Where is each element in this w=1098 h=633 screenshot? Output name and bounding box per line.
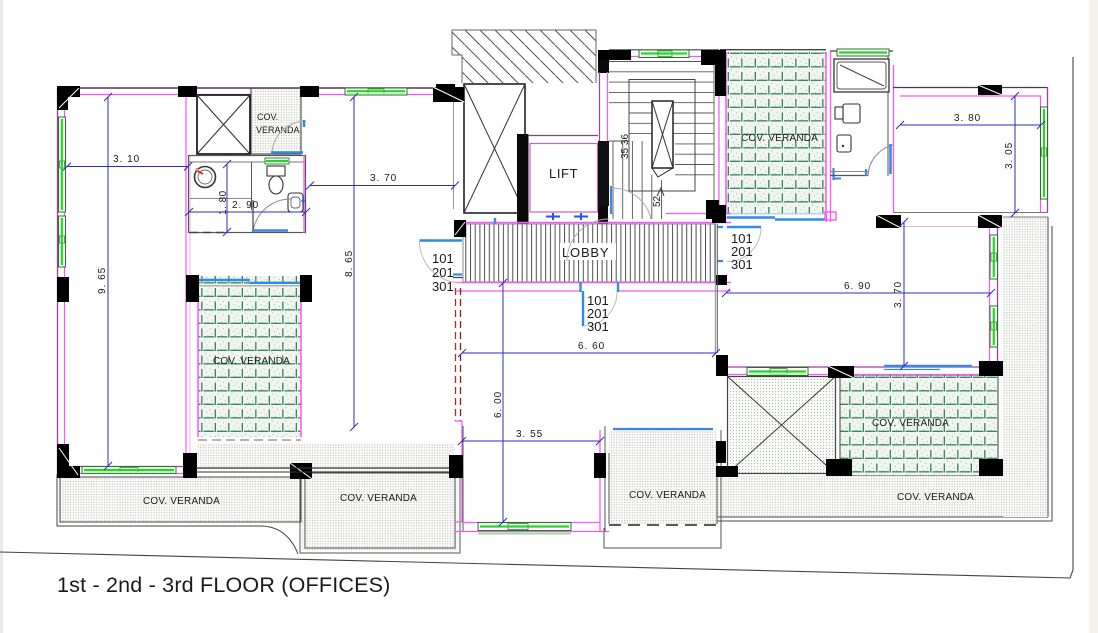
svg-text:3. 70: 3. 70: [370, 173, 397, 184]
svg-text:101: 101: [432, 251, 454, 266]
svg-text:301: 301: [432, 279, 454, 294]
svg-text:3. 05: 3. 05: [1004, 142, 1015, 169]
svg-text:201: 201: [432, 265, 454, 280]
svg-text:1st - 2nd - 3rd FLOOR (OFFICES: 1st - 2nd - 3rd FLOOR (OFFICES): [57, 573, 391, 597]
svg-text:2. 90: 2. 90: [232, 200, 259, 211]
svg-text:COV. VERANDA: COV. VERANDA: [741, 133, 818, 144]
svg-text:3. 10: 3. 10: [113, 154, 140, 165]
svg-text:9. 65: 9. 65: [97, 267, 108, 294]
svg-text:301: 301: [731, 257, 753, 272]
svg-text:6. 00: 6. 00: [493, 391, 504, 418]
svg-text:COV. VERANDA: COV. VERANDA: [143, 496, 220, 507]
svg-text:VERANDA: VERANDA: [256, 125, 300, 135]
svg-text:8. 65: 8. 65: [344, 250, 355, 277]
svg-text:COV. VERANDA: COV. VERANDA: [872, 418, 949, 429]
svg-text:COV. VERANDA: COV. VERANDA: [629, 490, 706, 501]
svg-text:LIFT: LIFT: [549, 166, 578, 181]
svg-text:3. 80: 3. 80: [954, 113, 981, 124]
svg-text:6. 90: 6. 90: [844, 281, 871, 292]
svg-text:COV.: COV.: [257, 112, 278, 122]
svg-text:3. 70: 3. 70: [893, 281, 904, 308]
svg-text:35 36: 35 36: [620, 134, 631, 159]
svg-text:1. 80: 1. 80: [218, 190, 229, 215]
svg-text:COV. VERANDA: COV. VERANDA: [897, 492, 974, 503]
svg-text:3. 55: 3. 55: [516, 429, 543, 440]
svg-text:301: 301: [587, 319, 609, 334]
svg-text:6. 60: 6. 60: [578, 341, 605, 352]
svg-text:COV. VERANDA: COV. VERANDA: [213, 356, 290, 367]
svg-text:COV. VERANDA: COV. VERANDA: [340, 493, 417, 504]
svg-text:52: 52: [652, 195, 663, 207]
